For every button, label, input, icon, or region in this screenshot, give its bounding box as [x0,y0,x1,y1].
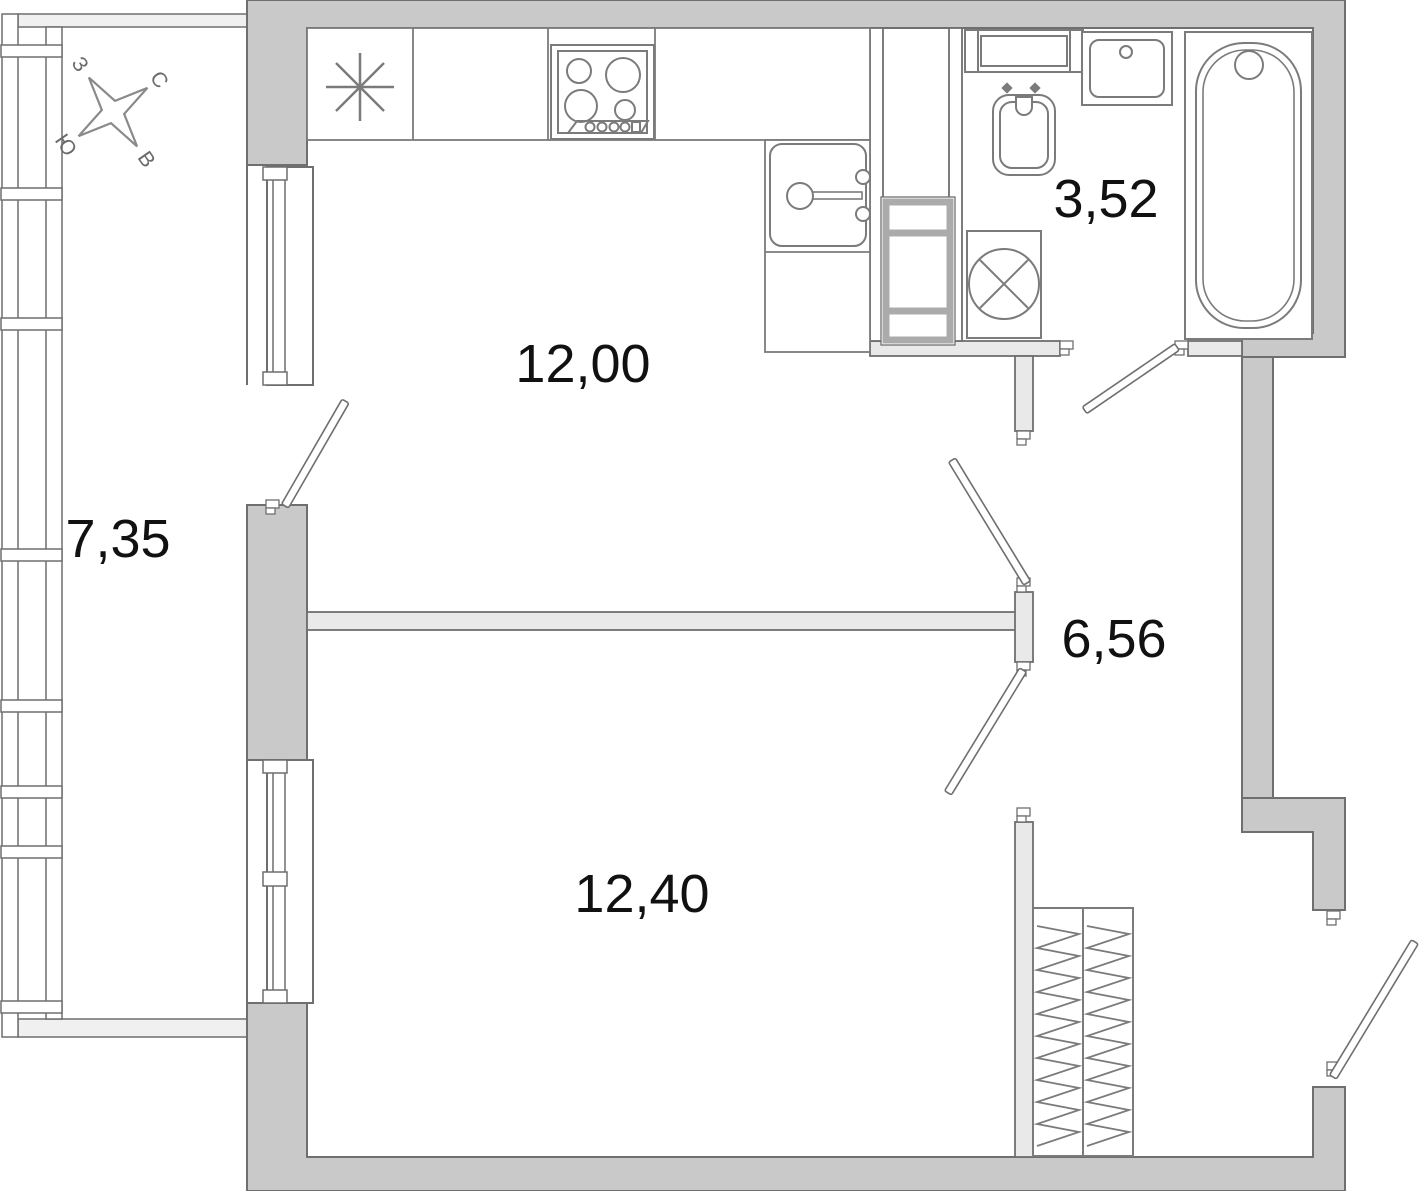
wall-right-thin [1242,357,1273,798]
balcony-glazing-window [1,14,62,1037]
partition-bathroom-right [1188,341,1242,356]
living-room-area-label: 12,40 [574,864,709,924]
washbasin-icon [1082,32,1172,105]
toilet-icon [965,30,1083,175]
kitchen-door [949,458,1031,585]
wall-left-middle [247,505,307,760]
ventilation-shaft [881,197,955,345]
partition-room-hall [1015,822,1033,1157]
entrance-door [1330,940,1419,1079]
balcony-top-sill [18,14,247,27]
bathroom-door [1082,344,1179,414]
kitchen-sink-icon [770,144,870,246]
wall-bottom [247,1003,1345,1191]
bathtub-icon [1185,32,1312,339]
compass-east-label: В [133,147,160,172]
stove-icon [551,45,654,139]
washing-machine-icon [967,231,1041,338]
partition-kitchen-hall-stub [1015,356,1033,431]
room-window [247,760,313,1003]
balcony-door [282,399,349,508]
room-door [945,668,1027,795]
compass-north-label: С [145,67,173,93]
balcony-bottom-sill [18,1019,247,1037]
wardrobe [1033,908,1133,1156]
balcony-area-label: 7,35 [65,509,170,569]
bathroom-area-label: 3,52 [1053,169,1158,229]
fridge-symbol-icon [326,53,394,121]
compass-west-label: З [67,53,93,77]
floor-plan: С Ю З В 7,35 12,00 3,52 6,56 12,40 [0,0,1420,1191]
door-jambs [266,341,1340,1076]
kitchen-window [247,165,313,385]
partition-kitchen-room [307,612,1017,630]
partition-doors-post [1015,592,1033,662]
kitchen-area-label: 12,00 [515,334,650,394]
hallway-area-label: 6,56 [1061,609,1166,669]
wall-right-lower [1242,798,1345,910]
